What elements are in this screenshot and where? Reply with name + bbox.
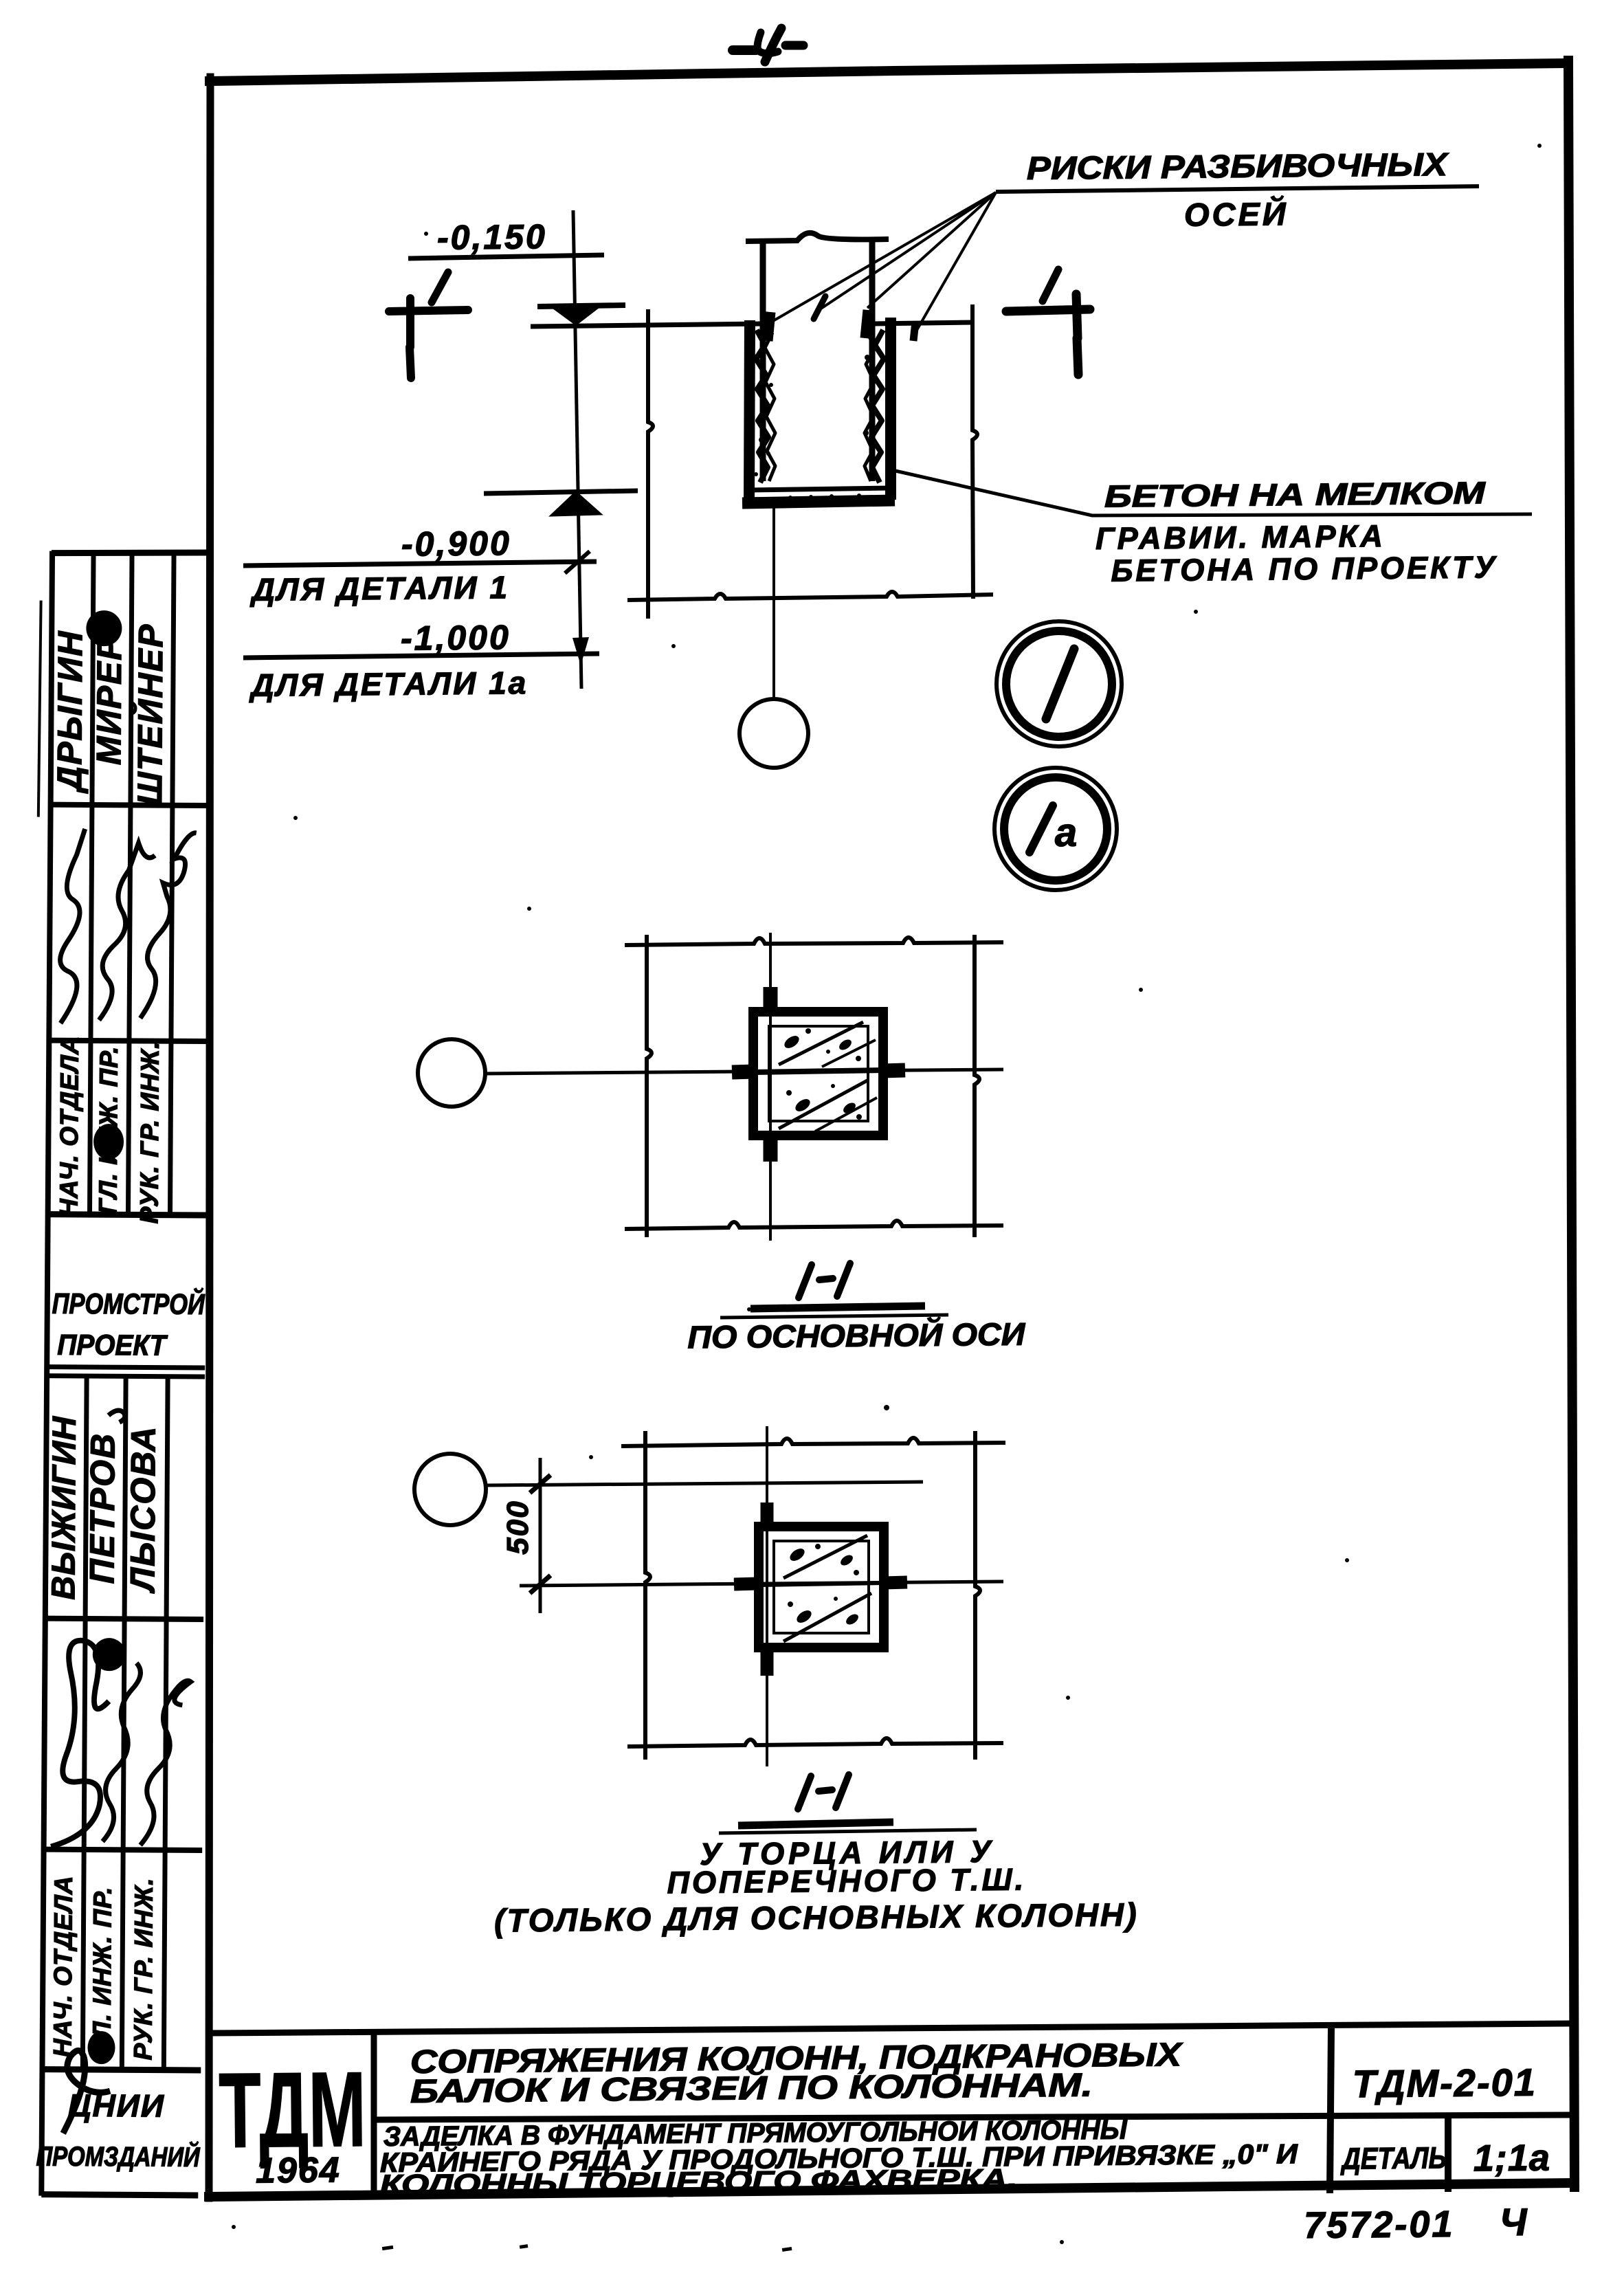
svg-text:ШТЕЙНЕР: ШТЕЙНЕР (130, 623, 170, 806)
svg-text:ГЛ. ИНЖ. ПР.: ГЛ. ИНЖ. ПР. (87, 1886, 116, 2055)
svg-text:ДРЫГИН: ДРЫГИН (50, 630, 89, 795)
svg-text:(ТОЛЬКО ДЛЯ ОСНОВНЫХ КОЛОН: (ТОЛЬКО ДЛЯ ОСНОВНЫХ КОЛОНН) (494, 1896, 1139, 1939)
svg-text:БЕТОН НА МЕЛКОМ: БЕТОН НА МЕЛКОМ (1104, 475, 1487, 513)
svg-text:КОЛОННЫ ТОРЦЕВОГО ФАХВЕРКА.: КОЛОННЫ ТОРЦЕВОГО ФАХВЕРКА. (380, 2164, 1017, 2200)
svg-text:500: 500 (501, 1500, 535, 1554)
svg-text:ДЛЯ ДЕТАЛИ 1а: ДЛЯ ДЕТАЛИ 1а (248, 665, 528, 703)
svg-text:ДЕТАЛЬ: ДЕТАЛЬ (1339, 2141, 1447, 2175)
svg-text:ПРОЕКТ: ПРОЕКТ (57, 1329, 168, 1362)
svg-text:а: а (1055, 810, 1078, 855)
svg-text:ПРОМЗДАНИЙ: ПРОМЗДАНИЙ (36, 2140, 200, 2173)
svg-text:ТДМ-2-01: ТДМ-2-01 (1353, 2061, 1537, 2106)
svg-text:ПОПЕРЕЧНОГО Т.Ш.: ПОПЕРЕЧНОГО Т.Ш. (667, 1861, 1026, 1900)
svg-text:Ч: Ч (1500, 2200, 1528, 2243)
svg-text:РУК. ГР. ИНЖ.: РУК. ГР. ИНЖ. (135, 1041, 164, 1223)
svg-text:1;1а: 1;1а (1473, 2137, 1550, 2179)
svg-text:НАЧ. ОТДЕЛА: НАЧ. ОТДЕЛА (54, 1035, 84, 1217)
svg-text:РИСКИ РАЗБИВОЧНЫХ: РИСКИ РАЗБИВОЧНЫХ (1027, 146, 1449, 186)
svg-text:1964: 1964 (256, 2150, 341, 2191)
svg-text:-1,000: -1,000 (401, 618, 511, 658)
svg-text:ЛЫСОВА: ЛЫСОВА (123, 1425, 162, 1593)
svg-text:РУК. ГР. ИНЖ.: РУК. ГР. ИНЖ. (129, 1877, 158, 2060)
svg-text:ПРОМСТРОЙ: ПРОМСТРОЙ (52, 1286, 205, 1320)
svg-text:7572-01: 7572-01 (1304, 2204, 1455, 2246)
svg-text:ДЛЯ ДЕТАЛИ 1: ДЛЯ ДЕТАЛИ 1 (249, 569, 509, 608)
svg-text:БАЛОК И СВЯЗЕЙ ПО КОЛОННАМ: БАЛОК И СВЯЗЕЙ ПО КОЛОННАМ. (410, 2065, 1093, 2110)
svg-text:-0,900: -0,900 (401, 524, 511, 564)
svg-text:МИРЕР: МИРЕР (89, 636, 129, 765)
svg-text:ПЕТРОВ: ПЕТРОВ (82, 1432, 122, 1584)
svg-text:-0,150: -0,150 (437, 217, 547, 257)
svg-text:ПО ОСНОВНОЙ ОСИ: ПО ОСНОВНОЙ ОСИ (687, 1316, 1025, 1355)
svg-text:НАЧ. ОТДЕЛА: НАЧ. ОТДЕЛА (48, 1875, 78, 2057)
svg-text:ОСЕЙ: ОСЕЙ (1184, 195, 1289, 232)
svg-text:ВЫЖИГИН: ВЫЖИГИН (45, 1416, 83, 1600)
svg-text:БЕТОНА ПО ПРОЕКТУ: БЕТОНА ПО ПРОЕКТУ (1111, 549, 1498, 588)
